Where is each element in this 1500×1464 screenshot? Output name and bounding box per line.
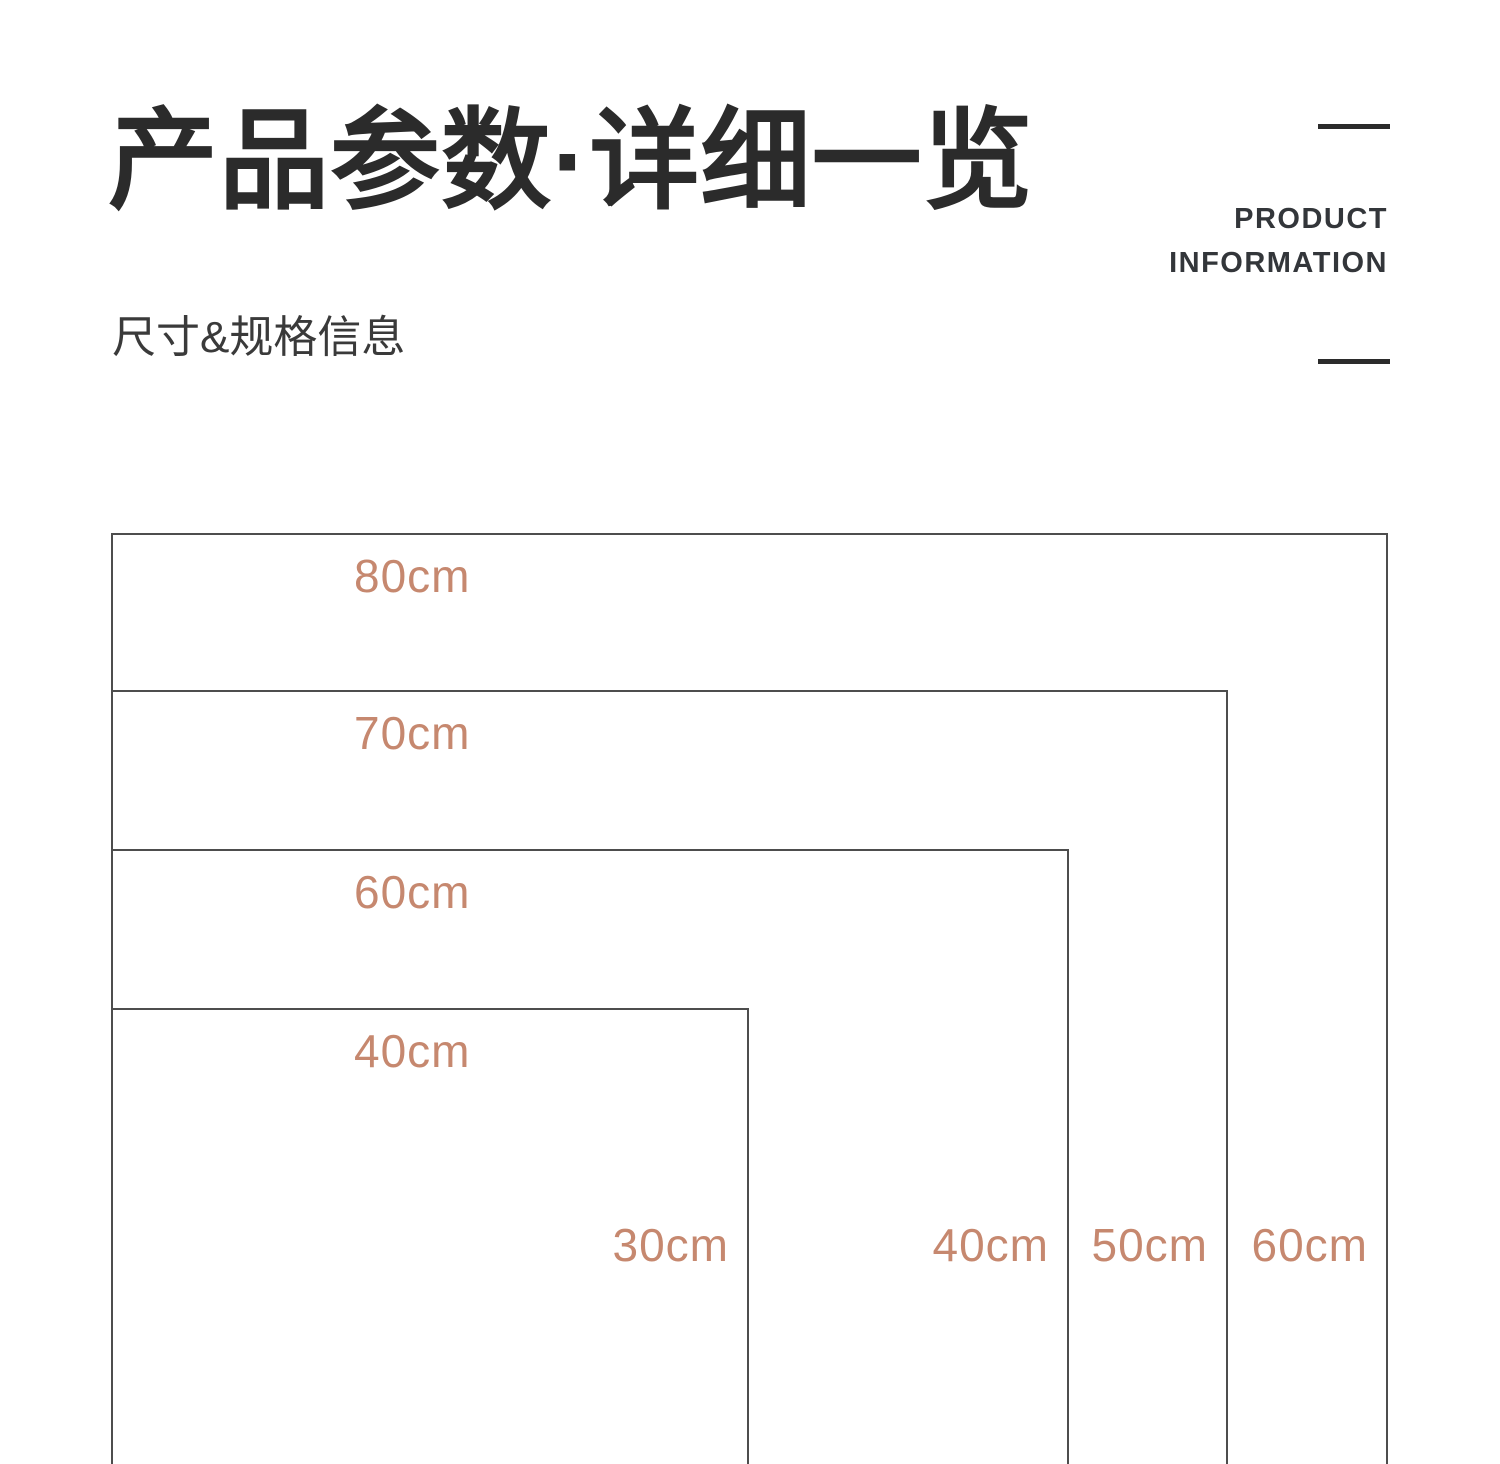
width-label-40: 40cm (354, 1028, 470, 1074)
depth-label-50: 50cm (1092, 1222, 1208, 1268)
size-spec-diagram: 80cm60cm70cm50cm60cm40cm40cm30cm (0, 0, 1500, 1464)
depth-label-30: 30cm (613, 1222, 729, 1268)
width-label-70: 70cm (354, 710, 470, 756)
depth-label-40: 40cm (933, 1222, 1049, 1268)
width-label-60: 60cm (354, 869, 470, 915)
product-information-page: 产品参数·详细一览 尺寸&规格信息 PRODUCT INFORMATION 80… (0, 0, 1500, 1464)
width-label-80: 80cm (354, 553, 470, 599)
depth-label-60: 60cm (1252, 1222, 1368, 1268)
